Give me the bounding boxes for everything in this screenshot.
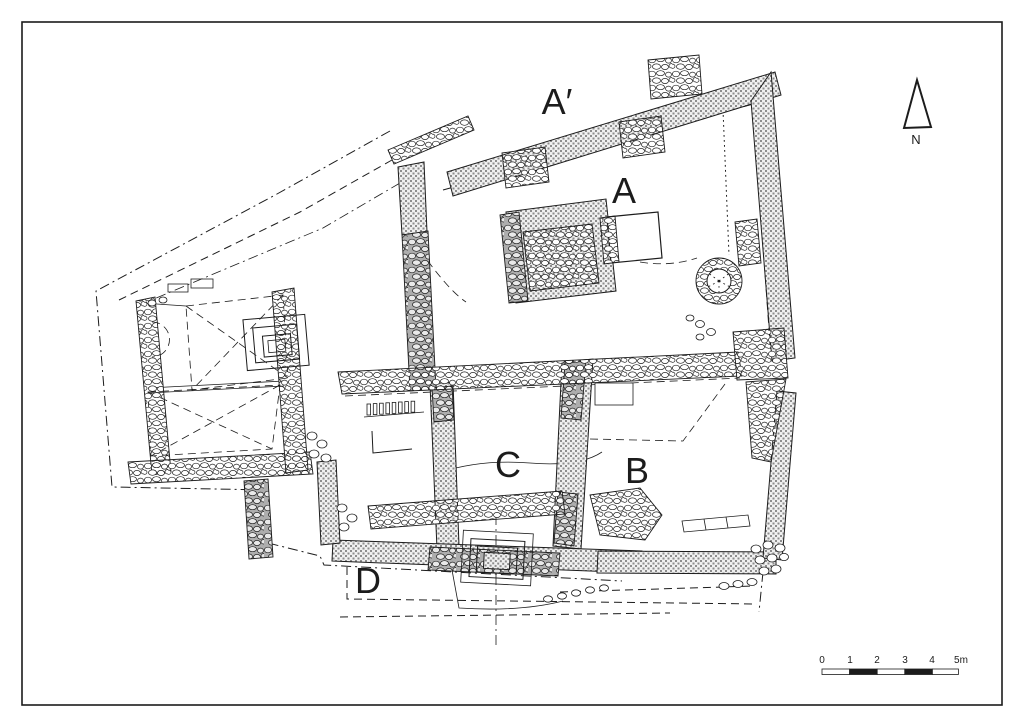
wall-stub-outside-north bbox=[648, 55, 702, 99]
scale-tick-4: 4 bbox=[929, 655, 935, 666]
well-feature bbox=[696, 258, 742, 304]
area-label-d: D bbox=[355, 560, 381, 601]
stone-cluster-c-east bbox=[590, 488, 662, 540]
area-label-a-prime: A′ bbox=[542, 81, 573, 122]
area-label-a: A bbox=[612, 170, 636, 211]
scale-segment bbox=[850, 669, 878, 675]
l-shaped-wall-mark bbox=[372, 431, 412, 453]
stone-row-northwest bbox=[388, 116, 474, 164]
wall-stub-a3 bbox=[735, 219, 761, 266]
scale-tick-0: 0 bbox=[819, 655, 825, 666]
scale-segment bbox=[932, 669, 958, 675]
scale-tick-1: 1 bbox=[847, 655, 853, 666]
scale-segment bbox=[822, 669, 850, 675]
area-label-c: C bbox=[495, 444, 521, 485]
north-label: N bbox=[911, 132, 920, 147]
plan-sheet: A′ A B C D N 0 1 2 3 4 5m bbox=[0, 0, 1024, 727]
step-feature bbox=[191, 279, 213, 288]
wall-stub-a2 bbox=[619, 116, 665, 158]
scale-segment bbox=[905, 669, 933, 675]
wall-band-south-east bbox=[597, 551, 776, 574]
scale-segment bbox=[877, 669, 905, 675]
scale-end-label: 5m bbox=[954, 655, 968, 666]
north-arrow: N bbox=[904, 80, 931, 147]
stone-wall-ac-divider bbox=[338, 352, 742, 394]
wall-band-east bbox=[751, 72, 795, 361]
square-annex bbox=[600, 212, 662, 264]
wall-stub-d bbox=[244, 479, 273, 559]
scale-tick-2: 2 bbox=[874, 655, 880, 666]
area-label-b: B bbox=[625, 450, 649, 491]
excavated-room-cross-north bbox=[186, 295, 288, 390]
step-feature bbox=[168, 284, 188, 292]
comb-stone-row bbox=[364, 401, 424, 417]
west-building bbox=[128, 279, 313, 484]
scale-tick-3: 3 bbox=[902, 655, 908, 666]
stone-bench bbox=[682, 515, 750, 532]
wall-band-west-south bbox=[317, 460, 340, 545]
scale-bar: 0 1 2 3 4 5m bbox=[819, 655, 968, 675]
stone-wall-under-c bbox=[368, 491, 565, 529]
wall-stub-hatch bbox=[398, 162, 427, 235]
site-plan-figure: A′ A B C D N 0 1 2 3 4 5m bbox=[0, 0, 1024, 727]
north-arrow-icon bbox=[904, 80, 931, 128]
central-structure bbox=[500, 199, 616, 303]
stone-wall-west bbox=[136, 297, 171, 475]
wall-stub-a1 bbox=[502, 147, 549, 188]
